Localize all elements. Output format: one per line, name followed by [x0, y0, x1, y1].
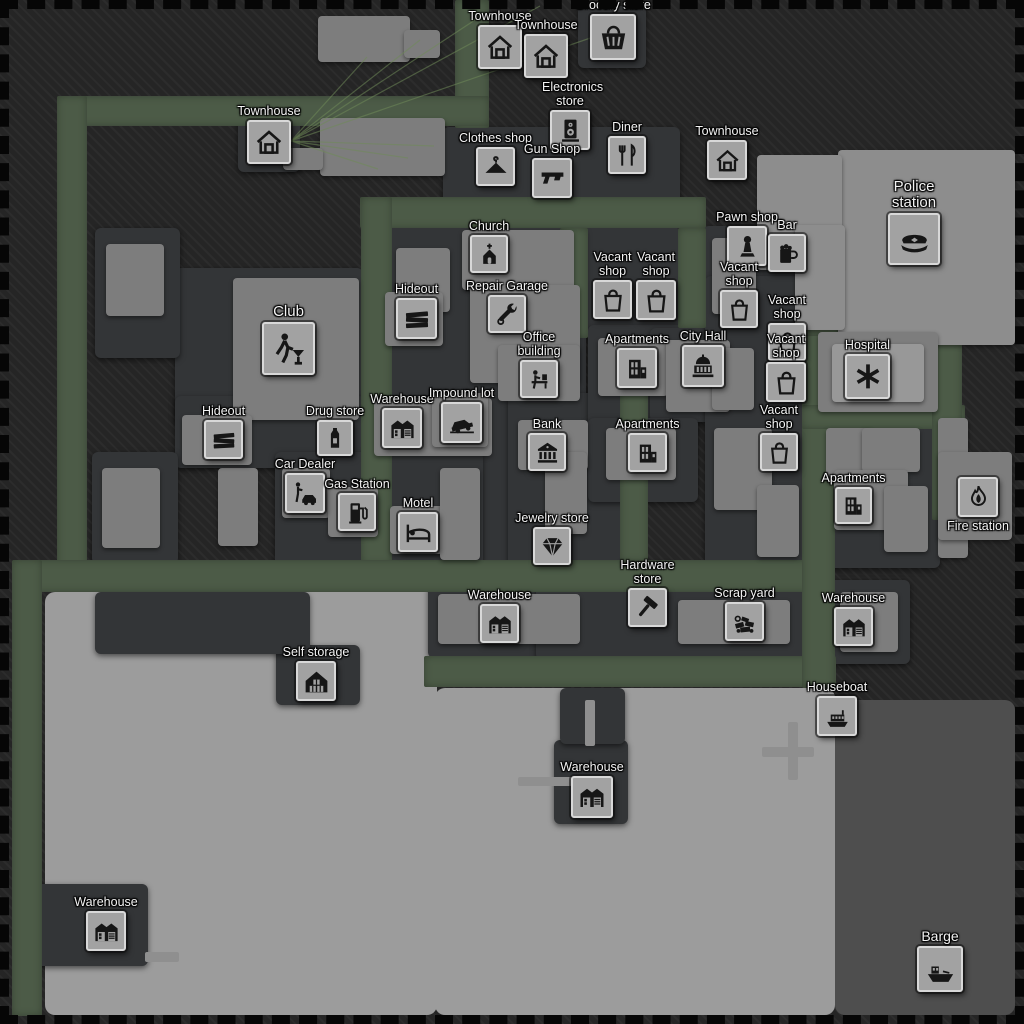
- warehouse-icon: [388, 414, 417, 443]
- bag-icon: [766, 439, 793, 466]
- location-warehouse-5[interactable]: Warehouse: [86, 911, 126, 951]
- location-vacant-shop-3[interactable]: Vacant shop: [720, 290, 758, 328]
- location-tile[interactable]: [533, 527, 571, 565]
- ship-icon: [924, 953, 957, 986]
- location-tile[interactable]: [628, 588, 667, 627]
- location-tile[interactable]: [768, 234, 806, 272]
- location-tile[interactable]: [532, 158, 572, 198]
- location-tile[interactable]: [382, 408, 422, 448]
- gun-icon: [538, 164, 567, 193]
- location-tile[interactable]: [524, 34, 568, 78]
- location-houseboat[interactable]: Houseboat: [817, 696, 857, 736]
- location-church[interactable]: Church: [470, 235, 508, 273]
- road: [678, 228, 706, 328]
- planks-icon: [210, 426, 238, 454]
- hammer-icon: [634, 594, 662, 622]
- location-vacant-shop-2[interactable]: Vacant shop: [636, 280, 676, 320]
- bottle-icon: [322, 425, 348, 451]
- building: [218, 468, 258, 546]
- location-bar[interactable]: Bar: [768, 234, 806, 272]
- dining-icon: [614, 142, 641, 169]
- location-tile[interactable]: [835, 487, 872, 524]
- location-warehouse-3[interactable]: Warehouse: [834, 607, 873, 646]
- building: [320, 118, 445, 176]
- gem-icon: [539, 533, 566, 560]
- location-hospital[interactable]: Hospital: [845, 354, 890, 399]
- dock: [145, 952, 179, 962]
- pawn-icon: [733, 232, 762, 261]
- location-tile[interactable]: [766, 362, 806, 402]
- location-hideout-1[interactable]: Hideout: [204, 420, 243, 459]
- scrap-icon: [731, 608, 759, 636]
- location-apartments-3[interactable]: Apartments: [835, 487, 872, 524]
- bay-area: [435, 688, 835, 1015]
- location-tile[interactable]: [725, 602, 764, 641]
- dock: [788, 722, 798, 780]
- location-tile[interactable]: [338, 493, 376, 531]
- tow-icon: [447, 408, 477, 438]
- location-tile[interactable]: [958, 477, 998, 517]
- location-bank[interactable]: Bank: [528, 433, 566, 471]
- location-label: Townhouse: [514, 19, 577, 33]
- location-jewelry-store[interactable]: Jewelry store: [533, 527, 571, 565]
- location-vacant-shop-6[interactable]: Vacant shop: [760, 433, 798, 471]
- road: [424, 656, 836, 687]
- bed-icon: [404, 518, 433, 547]
- building: [318, 16, 410, 62]
- location-tile[interactable]: [550, 110, 590, 150]
- location-police-station[interactable]: Police station: [888, 213, 940, 265]
- location-electronics-store[interactable]: Electronics store: [550, 110, 590, 150]
- location-vacant-shop-4[interactable]: Vacant shop: [768, 323, 806, 361]
- dancer-icon: [270, 330, 308, 368]
- location-tile[interactable]: [834, 607, 873, 646]
- location-warehouse-4[interactable]: Warehouse: [571, 776, 613, 818]
- location-tile[interactable]: [727, 226, 767, 266]
- building: [404, 30, 440, 58]
- bag-icon: [642, 286, 671, 315]
- building: [106, 244, 164, 316]
- location-tile[interactable]: [285, 473, 325, 513]
- planks-icon: [402, 304, 432, 334]
- building-icon: [634, 439, 662, 467]
- location-self-storage[interactable]: Self storage: [296, 661, 336, 701]
- location-townhouse-4[interactable]: Townhouse: [707, 140, 747, 180]
- house-icon: [713, 146, 742, 175]
- bag-icon: [726, 296, 753, 323]
- building: [757, 485, 799, 557]
- location-pawn-shop[interactable]: Pawn shop: [727, 226, 767, 266]
- location-tile[interactable]: [86, 911, 126, 951]
- basket-icon: [597, 21, 630, 54]
- location-diner[interactable]: Diner: [608, 136, 646, 174]
- location-tile[interactable]: [262, 322, 315, 375]
- bag-icon: [599, 286, 627, 314]
- location-apartments-2[interactable]: Apartments: [628, 433, 667, 472]
- location-warehouse-2[interactable]: Warehouse: [480, 604, 519, 643]
- medical-icon: [852, 361, 884, 393]
- location-clothes-shop[interactable]: Clothes shop: [476, 147, 515, 186]
- location-tile[interactable]: [528, 433, 566, 471]
- location-impound-lot[interactable]: Impound lot: [441, 402, 482, 443]
- warehouse-icon: [92, 917, 121, 946]
- wrench-icon: [494, 301, 521, 328]
- location-gun-shop[interactable]: Gun Shop: [532, 158, 572, 198]
- location-car-dealer[interactable]: Car Dealer: [285, 473, 325, 513]
- building-icon: [840, 492, 867, 519]
- location-tile[interactable]: [478, 25, 522, 69]
- bag-icon: [772, 368, 801, 397]
- location-apartments-1[interactable]: Apartments: [617, 348, 657, 388]
- location-tile[interactable]: [636, 280, 676, 320]
- building: [884, 486, 928, 552]
- location-repair-garage[interactable]: Repair Garage: [488, 295, 526, 333]
- house-icon: [253, 126, 285, 158]
- dock: [518, 777, 572, 786]
- location-tile[interactable]: [396, 298, 437, 339]
- house-icon: [530, 40, 562, 72]
- house-icon: [484, 31, 516, 63]
- location-tile[interactable]: [760, 433, 798, 471]
- location-tile[interactable]: [682, 345, 724, 387]
- location-tile[interactable]: [608, 136, 646, 174]
- location-townhouse-2[interactable]: Townhouse: [524, 34, 568, 78]
- location-gas-station[interactable]: Gas Station: [338, 493, 376, 531]
- location-vacant-shop-1[interactable]: Vacant shop: [593, 280, 632, 319]
- location-tile[interactable]: [296, 661, 336, 701]
- location-tile[interactable]: [845, 354, 890, 399]
- location-hardware-store[interactable]: Hardware store: [628, 588, 667, 627]
- location-tile[interactable]: [488, 295, 526, 333]
- location-hideout-2[interactable]: Hideout: [396, 298, 437, 339]
- location-tile[interactable]: [768, 323, 806, 361]
- location-city-hall[interactable]: City Hall: [682, 345, 724, 387]
- location-scrap-yard[interactable]: Scrap yard: [725, 602, 764, 641]
- location-tile[interactable]: [398, 512, 438, 552]
- location-vacant-shop-5[interactable]: Vacant shop: [766, 362, 806, 402]
- location-club[interactable]: Club: [262, 322, 315, 375]
- location-tile[interactable]: [707, 140, 747, 180]
- location-tile[interactable]: [817, 696, 857, 736]
- location-tile[interactable]: [520, 360, 558, 398]
- location-tile[interactable]: [917, 946, 963, 992]
- location-tile[interactable]: [470, 235, 508, 273]
- flame-icon: [964, 483, 993, 512]
- location-fire-station[interactable]: Fire station: [958, 477, 998, 517]
- church-icon: [476, 241, 503, 268]
- road: [12, 560, 835, 592]
- location-tile[interactable]: [590, 14, 636, 60]
- warehouse-icon: [577, 782, 607, 812]
- hanger-icon: [482, 153, 510, 181]
- bag-icon: [774, 329, 801, 356]
- building: [862, 428, 920, 472]
- location-tile[interactable]: [247, 120, 291, 164]
- location-townhouse-3[interactable]: Townhouse: [247, 120, 291, 164]
- location-barge[interactable]: Barge: [917, 946, 963, 992]
- location-motel[interactable]: Motel: [398, 512, 438, 552]
- location-label: Electronics store: [542, 81, 598, 108]
- location-tile[interactable]: [317, 420, 353, 456]
- building-icon: [623, 354, 652, 383]
- location-tile[interactable]: [441, 402, 482, 443]
- building: [102, 468, 160, 548]
- location-tile[interactable]: [617, 348, 657, 388]
- city-plot: [95, 592, 310, 654]
- location-drug-store[interactable]: Drug store: [317, 420, 353, 456]
- desk-icon: [526, 366, 553, 393]
- location-grocery-store[interactable]: Grocery store: [590, 14, 636, 60]
- location-tile[interactable]: [571, 776, 613, 818]
- pump-icon: [344, 499, 371, 526]
- beer-icon: [774, 240, 801, 267]
- city-map: TownhouseTownhouseGrocery storeTownhouse…: [0, 0, 1024, 1024]
- road: [57, 96, 87, 572]
- location-tile[interactable]: [480, 604, 519, 643]
- warehouse-icon: [486, 610, 514, 638]
- location-warehouse-1[interactable]: Warehouse: [382, 408, 422, 448]
- location-tile[interactable]: [888, 213, 940, 265]
- dealer-icon: [291, 479, 320, 508]
- building: [440, 468, 480, 560]
- police-icon: [896, 221, 933, 258]
- warehouse-icon: [840, 613, 868, 641]
- dock: [585, 700, 595, 746]
- storage-icon: [302, 667, 331, 696]
- location-tile[interactable]: [204, 420, 243, 459]
- road: [12, 560, 42, 1016]
- road: [360, 197, 706, 228]
- location-tile[interactable]: [720, 290, 758, 328]
- location-office-building[interactable]: Office building: [520, 360, 558, 398]
- bank-icon: [534, 439, 561, 466]
- location-tile[interactable]: [476, 147, 515, 186]
- houseboat-icon: [823, 702, 852, 731]
- speaker-icon: [556, 116, 585, 145]
- location-tile[interactable]: [593, 280, 632, 319]
- location-townhouse-1[interactable]: Townhouse: [478, 25, 522, 69]
- location-label: Townhouse: [695, 125, 758, 139]
- capitol-icon: [688, 351, 718, 381]
- location-tile[interactable]: [628, 433, 667, 472]
